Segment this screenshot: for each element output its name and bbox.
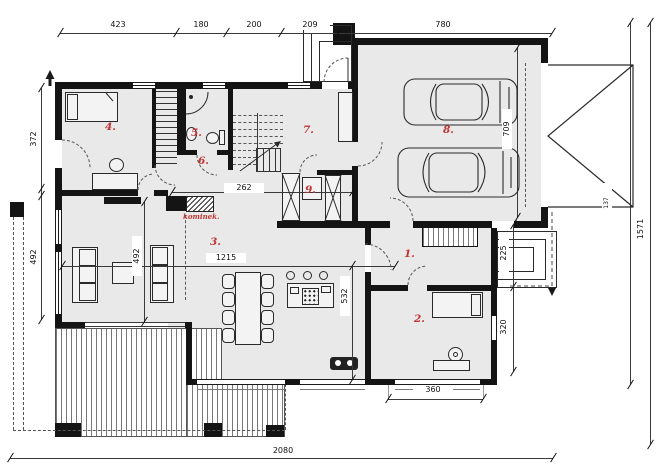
window-sill [197, 389, 285, 390]
dim-line-right [650, 23, 651, 445]
wall-corridor [365, 228, 371, 245]
wardrobe-mark [446, 221, 455, 228]
garage-gate-opening [525, 63, 526, 207]
dim-label: 200 [234, 20, 274, 30]
wardrobe-hatched [422, 227, 478, 247]
bed-pillow [471, 294, 481, 316]
pergola-outline [23, 217, 24, 430]
window [203, 82, 225, 89]
room-number-3: 3. [210, 236, 221, 248]
sofa-cushion [152, 247, 168, 265]
kitchen-sink-bowl [335, 360, 341, 366]
wall-right-rooms [491, 340, 497, 385]
wall-bath-bottom [181, 150, 197, 155]
room-number-6: 6. [198, 155, 209, 167]
pergola-outline [13, 217, 14, 430]
window-sill [300, 389, 365, 390]
sofa-cushion [152, 283, 168, 301]
pergola-outline [285, 384, 286, 430]
stairs-upper-dashed [233, 129, 283, 130]
dim-tick [647, 440, 654, 450]
room-number-5: 5. [191, 127, 202, 139]
wall-room1-2 [427, 285, 491, 291]
dining-chair [222, 292, 235, 307]
dim-label: 492 [132, 236, 142, 276]
room-number-9: 9. [305, 184, 316, 196]
dim-label: 360 [413, 385, 453, 395]
stairs-lower-flight [156, 91, 177, 166]
room-number-8: 8. [443, 124, 454, 136]
dim-label: 262 [224, 183, 264, 193]
wall-top [55, 82, 133, 89]
wall-garage-right [541, 38, 548, 63]
fireplace-block [166, 196, 186, 211]
dim-line-garage-d [517, 48, 518, 218]
dim-label: 709 [502, 109, 512, 149]
hob-burner [319, 271, 328, 280]
dim-line-top [60, 33, 552, 34]
dim-label: 2080 [263, 446, 303, 456]
slider-door [85, 322, 185, 323]
stairs-upper-dashed [233, 136, 283, 137]
floor-plan: 423 180 200 209 780 2080 372 492 1571 26… [0, 0, 660, 474]
dining-chair [261, 328, 274, 343]
dim-line-right [630, 23, 631, 385]
sofa-cushion [152, 265, 168, 283]
dim-label: 423 [98, 20, 138, 30]
desk [92, 173, 138, 190]
wall-bottom [285, 379, 300, 385]
stairs-upper-dashed [233, 164, 256, 165]
north-arrow [46, 70, 55, 86]
dim-line-bottom [10, 458, 553, 459]
tv [104, 197, 141, 204]
wall-garage-bottom [514, 221, 548, 228]
stairs-stringer [257, 113, 258, 172]
dim-label: 1571 [636, 209, 646, 249]
wardrobe-mark [431, 221, 440, 228]
window [288, 82, 310, 89]
bed-pillow [67, 94, 78, 120]
wall-step [186, 322, 192, 385]
wardrobe-x [325, 175, 341, 221]
room-number-1: 1. [404, 248, 415, 260]
dim-label: 372 [29, 119, 39, 159]
dining-chair [222, 328, 235, 343]
fireplace-hatch [186, 196, 214, 212]
dim-label: 780 [423, 20, 463, 30]
kitchen-sink-top [321, 286, 331, 293]
dim-line-window [388, 399, 483, 400]
dim-line-side [513, 225, 514, 372]
room-number-4: 4. [105, 121, 116, 133]
wall-garage-bottom [277, 221, 390, 228]
wall-left [55, 82, 62, 140]
dim-line-left [41, 88, 42, 320]
stairs-solid-steps [256, 148, 281, 172]
window [133, 82, 155, 89]
nightstand-lamp [453, 352, 458, 357]
dining-chair [261, 274, 274, 289]
dim-label: 137 [602, 183, 612, 223]
dining-chair [222, 310, 235, 325]
dim-line-kitchen [352, 266, 353, 380]
toilet-tank [219, 130, 225, 145]
dim-label: 532 [340, 276, 350, 316]
wardrobe-x [282, 173, 300, 221]
window [197, 379, 285, 385]
room-number-7: 7. [303, 124, 314, 136]
floor-door-gap [138, 190, 154, 196]
dim-label: 209 [290, 20, 330, 30]
window [55, 210, 62, 244]
dim-label: 492 [29, 237, 39, 277]
room-number-2: 2. [414, 313, 425, 325]
window [491, 316, 497, 340]
stairs-upper-dashed [233, 143, 283, 144]
dining-chair [261, 310, 274, 325]
garage-gate-icon [548, 65, 633, 207]
sofa-cushion [79, 266, 96, 283]
stove-grid [302, 288, 319, 305]
open-plan-boundary [185, 215, 186, 300]
wall-bath-left [177, 89, 186, 155]
hob-burner [303, 271, 312, 280]
dim-label: 320 [499, 307, 509, 347]
desk-chair [109, 158, 124, 172]
dim-tick [510, 367, 517, 377]
pergola-outline [13, 430, 285, 431]
wall-room1-2 [371, 285, 408, 291]
dim-tick [627, 380, 634, 390]
hob-burner [286, 271, 295, 280]
wall-bottom-left [55, 322, 85, 328]
wall-top [225, 82, 288, 89]
dining-table [235, 272, 261, 345]
dim-line-living-w [62, 266, 395, 267]
dim-label: 225 [499, 233, 509, 273]
window [55, 252, 62, 314]
slider-door [85, 326, 185, 327]
stairs-upper-dashed [233, 115, 283, 116]
fireplace-label: kominek. [183, 212, 219, 221]
sofa-cushion [79, 249, 96, 266]
wall-top [310, 82, 322, 89]
walk-path-arrow [548, 288, 556, 296]
sofa-cushion [79, 283, 96, 301]
stairs-upper-dashed [233, 157, 256, 158]
wall-garage-top [340, 38, 548, 45]
window [300, 379, 365, 385]
kitchen-sink-top [290, 287, 299, 294]
dim-label: 180 [181, 20, 221, 30]
dining-chair [261, 292, 274, 307]
dining-chair [222, 274, 235, 289]
wall-top [155, 82, 203, 89]
toilet-bowl [206, 132, 219, 144]
dresser [433, 360, 470, 371]
floor-door-gap [352, 142, 358, 166]
dim-line-living-d [144, 202, 145, 322]
entry-steps [319, 41, 352, 82]
wall-left [55, 244, 62, 252]
deck-post [266, 425, 284, 437]
stairs-upper-dashed [233, 122, 283, 123]
wall-living-north [62, 190, 138, 196]
stairs-upper-dashed [233, 150, 256, 151]
wall-left [55, 168, 62, 210]
pergola-post [10, 202, 24, 217]
dim-tick [38, 315, 45, 325]
wall-bottom [186, 379, 197, 385]
wardrobe [338, 92, 353, 142]
dim-label: 1215 [206, 253, 246, 263]
